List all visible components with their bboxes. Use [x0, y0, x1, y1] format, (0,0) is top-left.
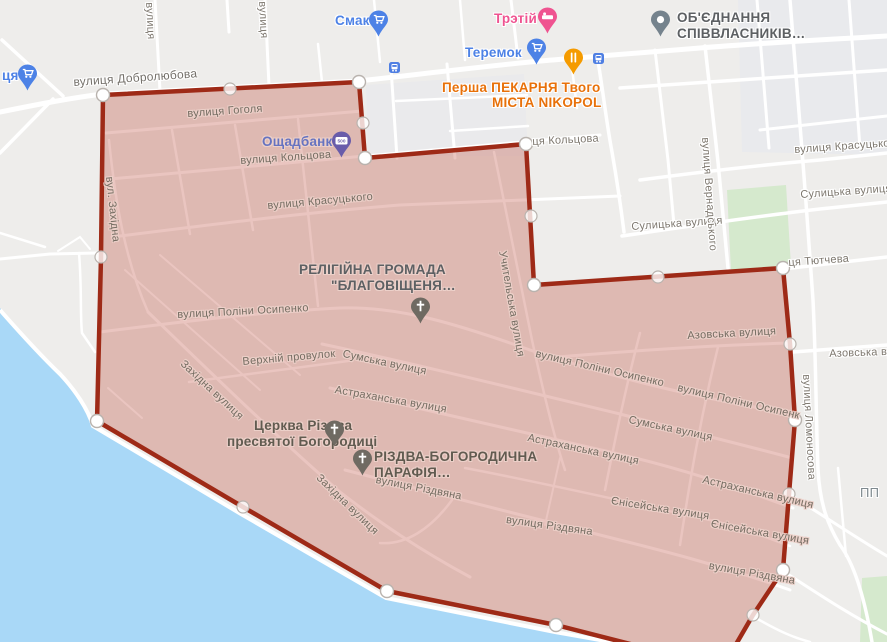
polygon-midpoint-handle[interactable] [784, 338, 796, 350]
street-label-azovska-cut: Азовська вул [829, 346, 887, 361]
map-base-layer [0, 0, 887, 642]
poi-label-rizdva-parafiya-line2[interactable]: ПАРАФІЯ… [374, 465, 451, 481]
poi-label-tretiy[interactable]: Трэтій [494, 11, 537, 27]
svg-text:500: 500 [337, 139, 345, 145]
polygon-midpoint-handle[interactable] [652, 271, 664, 283]
polygon-vertex-handle[interactable] [353, 76, 366, 89]
street-label-vulytsya: вулиця [255, 1, 270, 39]
polygon-midpoint-handle[interactable] [747, 609, 759, 621]
church-pin-icon[interactable] [351, 448, 374, 477]
bus-stop-icon[interactable] [389, 60, 400, 71]
poi-label-religiyna-line1[interactable]: РЕЛІГІЙНА ГРОМАДА [299, 262, 446, 278]
restaurant-pin-icon[interactable] [562, 47, 585, 76]
polygon-vertex-handle[interactable] [528, 279, 541, 292]
shopping-cart-pin-icon[interactable] [367, 9, 390, 38]
area-label-pp: ПП [860, 486, 879, 501]
street-label-vulytsya: вулиця [142, 2, 157, 40]
shopping-cart-pin-icon[interactable] [525, 37, 548, 66]
polygon-vertex-handle[interactable] [359, 152, 372, 165]
polygon-vertex-handle[interactable] [550, 619, 563, 632]
hotel-bed-pin-icon[interactable] [536, 6, 559, 35]
bus-stop-icon[interactable] [593, 51, 604, 62]
poi-label-smak[interactable]: Смак [335, 13, 370, 29]
polygon-midpoint-handle[interactable] [224, 83, 236, 95]
polygon-midpoint-handle[interactable] [357, 117, 369, 129]
polygon-vertex-handle[interactable] [91, 415, 104, 428]
polygon-midpoint-handle[interactable] [237, 501, 249, 513]
polygon-vertex-handle[interactable] [520, 138, 533, 151]
poi-label-obyednannya-line1[interactable]: ОБ'ЄДНАННЯ [677, 10, 770, 26]
poi-label-persha-pekarnya-line2[interactable]: МІСТА NIKOPOL [492, 95, 601, 111]
poi-label-obyednannya-line2[interactable]: СПІВВЛАСНИКІВ… [677, 26, 806, 42]
poi-label-religiyna-line2[interactable]: "БЛАГОВІЩЕНЯ… [331, 278, 456, 294]
poi-label-persha-pekarnya-line1[interactable]: Перша ПЕКАРНЯ Твого [442, 80, 600, 96]
polygon-vertex-handle[interactable] [97, 89, 110, 102]
gray-place-pin-icon[interactable] [649, 9, 672, 38]
park-area [727, 185, 791, 271]
church-pin-icon[interactable] [409, 296, 432, 325]
map-canvas[interactable]: вулиця Добролюбова вулиця вулиця ця Коль… [0, 0, 887, 642]
polygon-midpoint-handle[interactable] [525, 210, 537, 222]
polygon-midpoint-handle[interactable] [95, 251, 107, 263]
church-pin-icon[interactable] [323, 419, 346, 448]
polygon-vertex-handle[interactable] [381, 585, 394, 598]
shopping-cart-pin-icon[interactable] [16, 63, 39, 92]
poi-label-oschadbank[interactable]: Ощадбанк [262, 134, 333, 150]
poi-label-teremok[interactable]: Теремок [465, 45, 522, 61]
poi-label-rizdva-parafiya-line1[interactable]: РІЗДВА-БОГОРОДИЧНА [374, 449, 537, 465]
oschadbank-pin-icon[interactable]: 500 [330, 130, 353, 159]
